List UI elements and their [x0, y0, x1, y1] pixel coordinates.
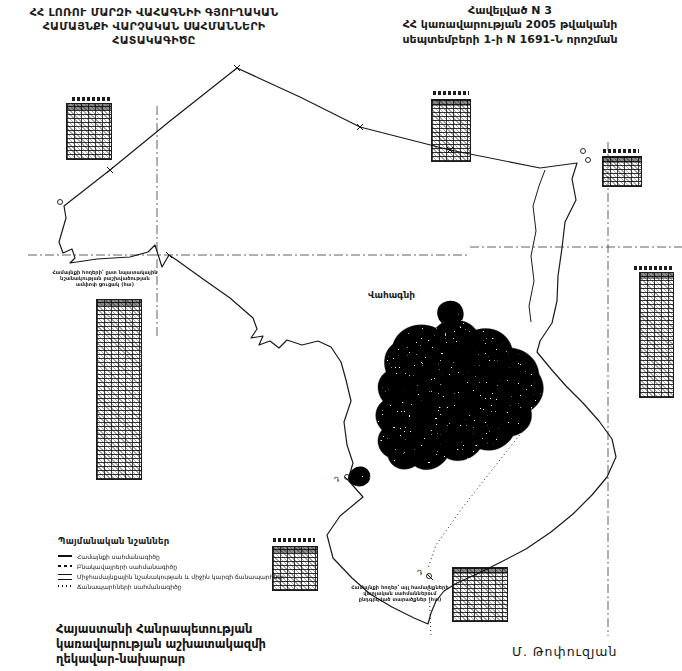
land-balance-table-east	[639, 272, 674, 398]
legend-title: Պայմանական նշաններ	[58, 536, 268, 546]
scanned-map-sheet: Դ Դ ՀՀ ԼՈՌՈՒ ՄԱՐԶԻ ՎԱՀԱԳՆԻԻ ԳՅՈՒՂԱԿԱՆ ՀԱ…	[0, 0, 682, 671]
land-balance-mini-table-se	[452, 567, 508, 622]
legend-item-label: Բնակավայրերի սահմանագիծը	[77, 563, 177, 570]
bottom-table-caption: Համայնքի հողեր՝ այլ համայնքների վարչական…	[350, 585, 450, 602]
point-marker	[581, 149, 586, 154]
legend-item: Համայնքի սահմանագիծը	[58, 551, 268, 561]
mini-table-title	[273, 538, 315, 542]
mini-table-title	[72, 97, 110, 101]
land-balance-mini-table-ne	[602, 156, 642, 187]
annex-line3: սեպտեմբերի 1-ի N 1691-Ն որոշման	[352, 33, 668, 47]
mini-table-title	[634, 266, 672, 270]
point-marker	[58, 200, 63, 205]
settlement-name-label: Վահագնի	[368, 290, 415, 300]
map-title-line1: ՀՀ ԼՈՌՈՒ ՄԱՐԶԻ ՎԱՀԱԳՆԻԻ ԳՅՈՒՂԱԿԱՆ	[4, 6, 304, 20]
signature-line2: կառավարության աշխատակազմի	[56, 637, 266, 652]
legend-item-label: Ճանապարհների սահմանագիծը	[77, 583, 182, 590]
annex-reference: Հավելված N 3 ՀՀ կառավարության 2005 թվակա…	[352, 4, 668, 47]
map-title-line3: ՀԱՏԱԿԱԳԻԾԸ	[4, 34, 304, 48]
inner-boundary-line	[529, 170, 545, 322]
annex-line1: Հավելված N 3	[352, 4, 668, 18]
land-balance-mini-table-n	[431, 99, 471, 162]
map-title: ՀՀ ԼՈՌՈՒ ՄԱՐԶԻ ՎԱՀԱԳՆԻԻ ԳՅՈՒՂԱԿԱՆ ՀԱՄԱՅՆ…	[4, 6, 304, 47]
settlement-line-symbol-icon	[58, 563, 72, 569]
legend-item-label: Համայնքի սահմանագիծը	[77, 553, 160, 560]
dotted-line-symbol-icon	[58, 583, 72, 589]
mini-table-title	[433, 91, 469, 95]
mini-table-title	[603, 149, 639, 153]
land-balance-mini-table-nw	[66, 103, 112, 160]
signature-line1: Հայաստանի Հանրապետության	[56, 622, 266, 637]
marker-label-d1: Դ	[334, 476, 340, 484]
settlement-parcel-texture	[349, 301, 544, 487]
land-balance-mini-table-s	[272, 546, 318, 591]
signature-block: Հայաստանի Հանրապետության կառավարության ա…	[56, 622, 266, 667]
boundary-line-symbol-icon	[58, 553, 72, 559]
legend-item: Միջհամայնքային նշանակության և միջին կարգ…	[58, 571, 268, 581]
marker-label-d2: Դ	[417, 569, 423, 577]
left-table-caption: Համայնքի հողերի՝ ըստ նպատակային նշանակու…	[50, 270, 160, 287]
map-title-line2: ՀԱՄԱՅՆՔԻ ՎԱՐՉԱԿԱՆ ՍԱՀՄԱՆՆԵՐԻ	[4, 20, 304, 34]
legend-item: Ճանապարհների սահմանագիծը	[58, 581, 268, 591]
point-marker	[586, 158, 591, 163]
annex-line2: ՀՀ կառավարության 2005 թվականի	[352, 18, 668, 32]
land-balance-table-west	[96, 299, 142, 480]
road-line-symbol-icon	[58, 574, 72, 580]
signer-name: Մ. Թոփուզյան	[512, 644, 617, 659]
legend-item-label: Միջհամայնքային նշանակության և միջին կարգ…	[77, 573, 285, 580]
signature-line3: ղեկավար-նախարար	[56, 652, 266, 667]
survey-tick-marks	[107, 65, 453, 580]
legend: Պայմանական նշաններ Համայնքի սահմանագիծը …	[58, 536, 268, 591]
legend-item: Բնակավայրերի սահմանագիծը	[58, 561, 268, 571]
